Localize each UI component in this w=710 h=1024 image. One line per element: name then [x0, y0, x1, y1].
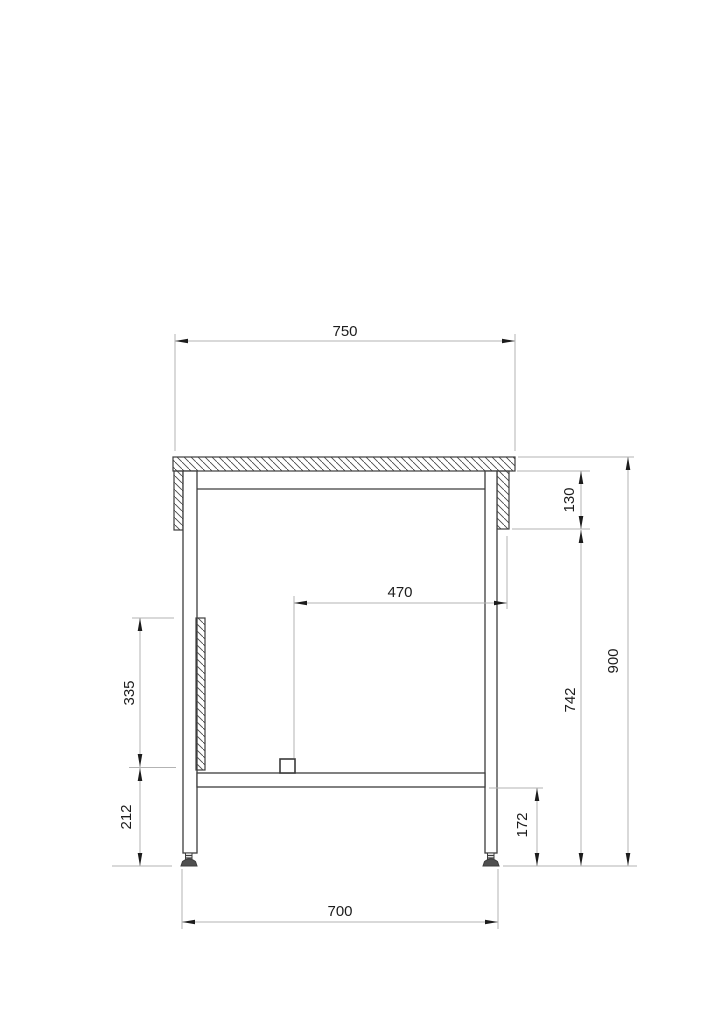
- arrowhead: [579, 471, 584, 484]
- arrowhead: [485, 920, 498, 925]
- arrowhead: [626, 853, 631, 866]
- right-apron-section: [497, 471, 509, 529]
- right-levelling-foot: [483, 853, 499, 866]
- dimension-inner-clearance: 470: [294, 536, 507, 758]
- technical-drawing-canvas: 750 470 130 742 900: [0, 0, 710, 1024]
- arrowhead: [138, 618, 143, 631]
- dimension-side-panel-height: 335: [121, 618, 176, 768]
- right-leg: [485, 471, 497, 853]
- shelf-block-section: [280, 759, 295, 773]
- arrowhead: [182, 920, 195, 925]
- left-levelling-foot: [181, 853, 197, 866]
- arrowhead: [535, 853, 540, 866]
- foot-dome: [181, 859, 197, 866]
- dimension-label: 212: [118, 804, 135, 829]
- dimension-label: 470: [387, 584, 412, 601]
- arrowhead: [294, 601, 307, 606]
- dimension-label: 742: [562, 687, 579, 712]
- table-structure: [173, 457, 515, 866]
- dimension-overall-height: 900: [518, 457, 634, 866]
- arrowhead: [579, 516, 584, 529]
- left-apron-section: [174, 471, 183, 530]
- dimension-label: 750: [332, 323, 357, 340]
- arrowhead: [494, 601, 507, 606]
- dimension-top-width: 750: [175, 323, 515, 451]
- arrowhead: [579, 853, 584, 866]
- left-leg: [183, 471, 197, 853]
- tabletop-section: [173, 457, 515, 471]
- dimension-label: 900: [605, 648, 622, 673]
- arrowhead: [579, 530, 584, 543]
- dimension-underframe-height: 742: [562, 530, 583, 866]
- arrowhead: [626, 457, 631, 470]
- dimension-apron-height: 130: [512, 471, 590, 529]
- arrowhead: [535, 788, 540, 801]
- arrowhead: [138, 754, 143, 767]
- dimension-panel-to-floor: 212: [112, 768, 172, 866]
- arrowhead: [138, 768, 143, 781]
- arrowhead: [175, 339, 188, 344]
- dimension-label: 335: [121, 680, 138, 705]
- dimension-label: 130: [561, 487, 578, 512]
- drawing-sheet: 750 470 130 742 900: [0, 0, 710, 1024]
- arrowhead: [138, 853, 143, 866]
- foot-dome: [483, 859, 499, 866]
- dimension-label: 700: [327, 903, 352, 920]
- dimension-leg-spacing: 700: [182, 869, 498, 929]
- side-panel-section: [196, 618, 205, 770]
- dimension-label: 172: [514, 812, 531, 837]
- lower-shelf: [197, 773, 485, 787]
- dimension-shelf-to-floor: 172: [489, 788, 637, 866]
- arrowhead: [502, 339, 515, 344]
